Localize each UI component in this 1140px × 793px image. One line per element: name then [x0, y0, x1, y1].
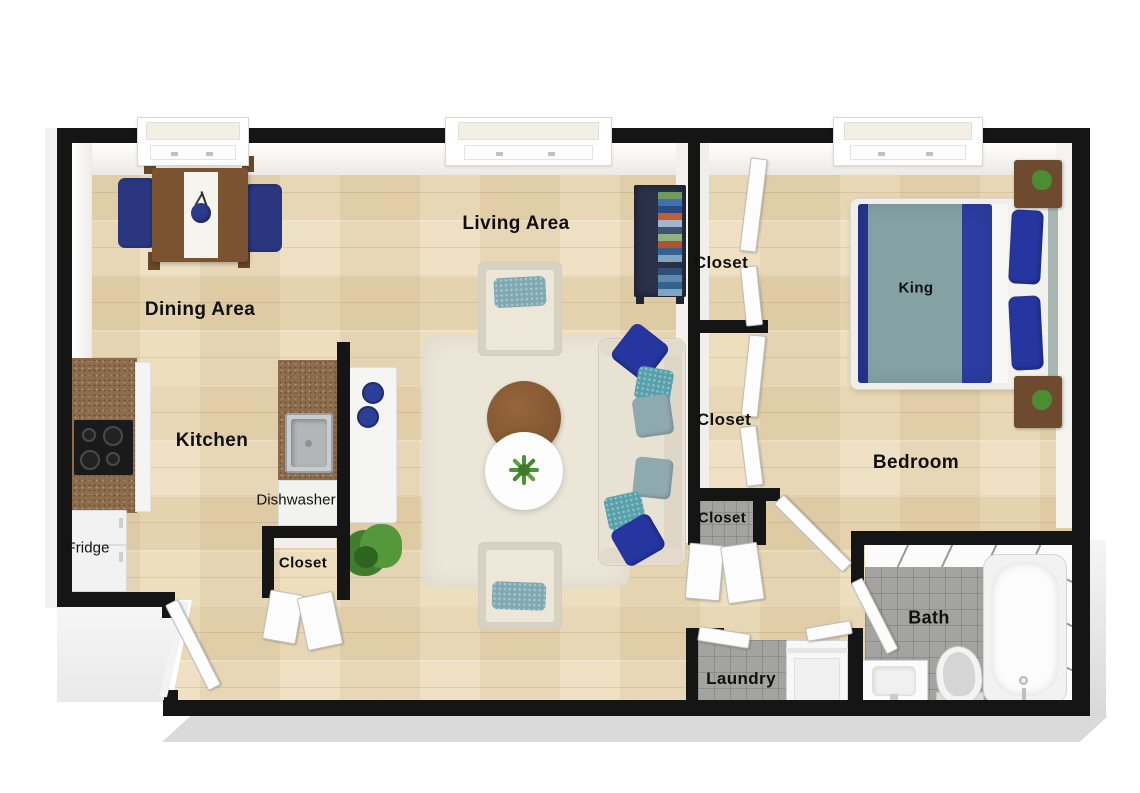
sink-drain [305, 440, 312, 447]
centerpiece-vase [191, 203, 211, 223]
window-latch [878, 152, 885, 156]
fridge-handle [119, 518, 123, 528]
sofa-pillow-gray [631, 394, 674, 439]
stove-burner [106, 452, 120, 466]
window-latch [171, 152, 178, 156]
wall-closet-column-left [688, 128, 700, 545]
window-sill [844, 122, 971, 140]
bed-pillow [1008, 209, 1044, 285]
stove-burner [80, 450, 100, 470]
wall-right [1072, 128, 1090, 716]
floor-plan: Living Area Dining Area Kitchen Bedroom … [0, 0, 1140, 793]
window-sill [146, 122, 241, 140]
stove-burner [103, 426, 123, 446]
window-latch [926, 152, 933, 156]
wall-kitchen-bottom [57, 592, 175, 607]
label-bedroom: Bedroom [873, 452, 959, 474]
kitchen-counter-edge [135, 362, 151, 512]
label-dining-area: Dining Area [145, 299, 255, 321]
armchair-top-pillow [493, 276, 546, 309]
bed-pillow [1008, 295, 1044, 371]
bookshelf-leg [636, 296, 644, 304]
wall-kitchen-closet-left [262, 526, 274, 598]
wall-laundry-left [686, 628, 698, 716]
window-living [445, 117, 612, 166]
label-fridge: Fridge [66, 540, 109, 557]
shadow-bottom [162, 716, 1108, 742]
wall-bedroom-south [688, 488, 780, 501]
label-dishwasher: Dishwasher [256, 492, 335, 509]
label-living-area: Living Area [462, 213, 569, 235]
window-dining [137, 117, 249, 166]
armchair-bottom-pillow [492, 581, 547, 611]
wall-bath-left-upper [851, 531, 864, 585]
label-closet-lower: Closet [698, 510, 746, 527]
label-closet-kitchen: Closet [279, 555, 327, 572]
fridge-handle [119, 552, 123, 562]
table-plant-center [518, 464, 530, 476]
window-pane [850, 145, 965, 160]
wall-bath-top [853, 531, 1090, 545]
book-spines [658, 268, 682, 296]
window-latch [548, 152, 555, 156]
window-pane [150, 145, 236, 160]
label-king: King [899, 280, 934, 297]
label-laundry: Laundry [706, 669, 776, 689]
book-spines [658, 192, 682, 262]
washer-panel [786, 648, 848, 653]
closet-lower-door [720, 542, 765, 605]
wall-laundry-bath-divider [848, 628, 863, 716]
wall-left [57, 128, 72, 607]
window-latch [496, 152, 503, 156]
shadow-right [1090, 540, 1106, 716]
bookshelf-leg [676, 296, 684, 304]
window-sill [458, 122, 600, 140]
washer-lid-inner [794, 658, 840, 704]
label-closet-upper: Closet [694, 253, 748, 273]
label-closet-middle: Closet [697, 410, 751, 430]
wall-outer-left [45, 128, 57, 608]
kitchen-closet-back-face [274, 538, 336, 548]
vanity-sink [872, 666, 916, 696]
dining-chair-right [244, 184, 282, 252]
nightstand-plant [1032, 170, 1052, 190]
label-kitchen: Kitchen [176, 430, 248, 452]
stove-burner [82, 428, 96, 442]
wall-bottom [163, 700, 1090, 716]
dining-chair-left [118, 178, 156, 248]
bathtub-drain [1019, 676, 1028, 685]
window-bedroom [833, 117, 983, 166]
closet-upper-back-wall [700, 143, 709, 320]
blue-bowl [362, 382, 384, 404]
closet-lower-door [685, 543, 725, 602]
wall-closet-lower-right [753, 488, 766, 545]
blue-bowl [357, 406, 379, 428]
window-latch [206, 152, 213, 156]
wall-kitchen-closet-top [262, 526, 350, 538]
label-bath: Bath [908, 608, 950, 629]
wall-island-divider [337, 342, 350, 600]
window-pane [464, 145, 593, 160]
plant-leaves [354, 546, 378, 568]
